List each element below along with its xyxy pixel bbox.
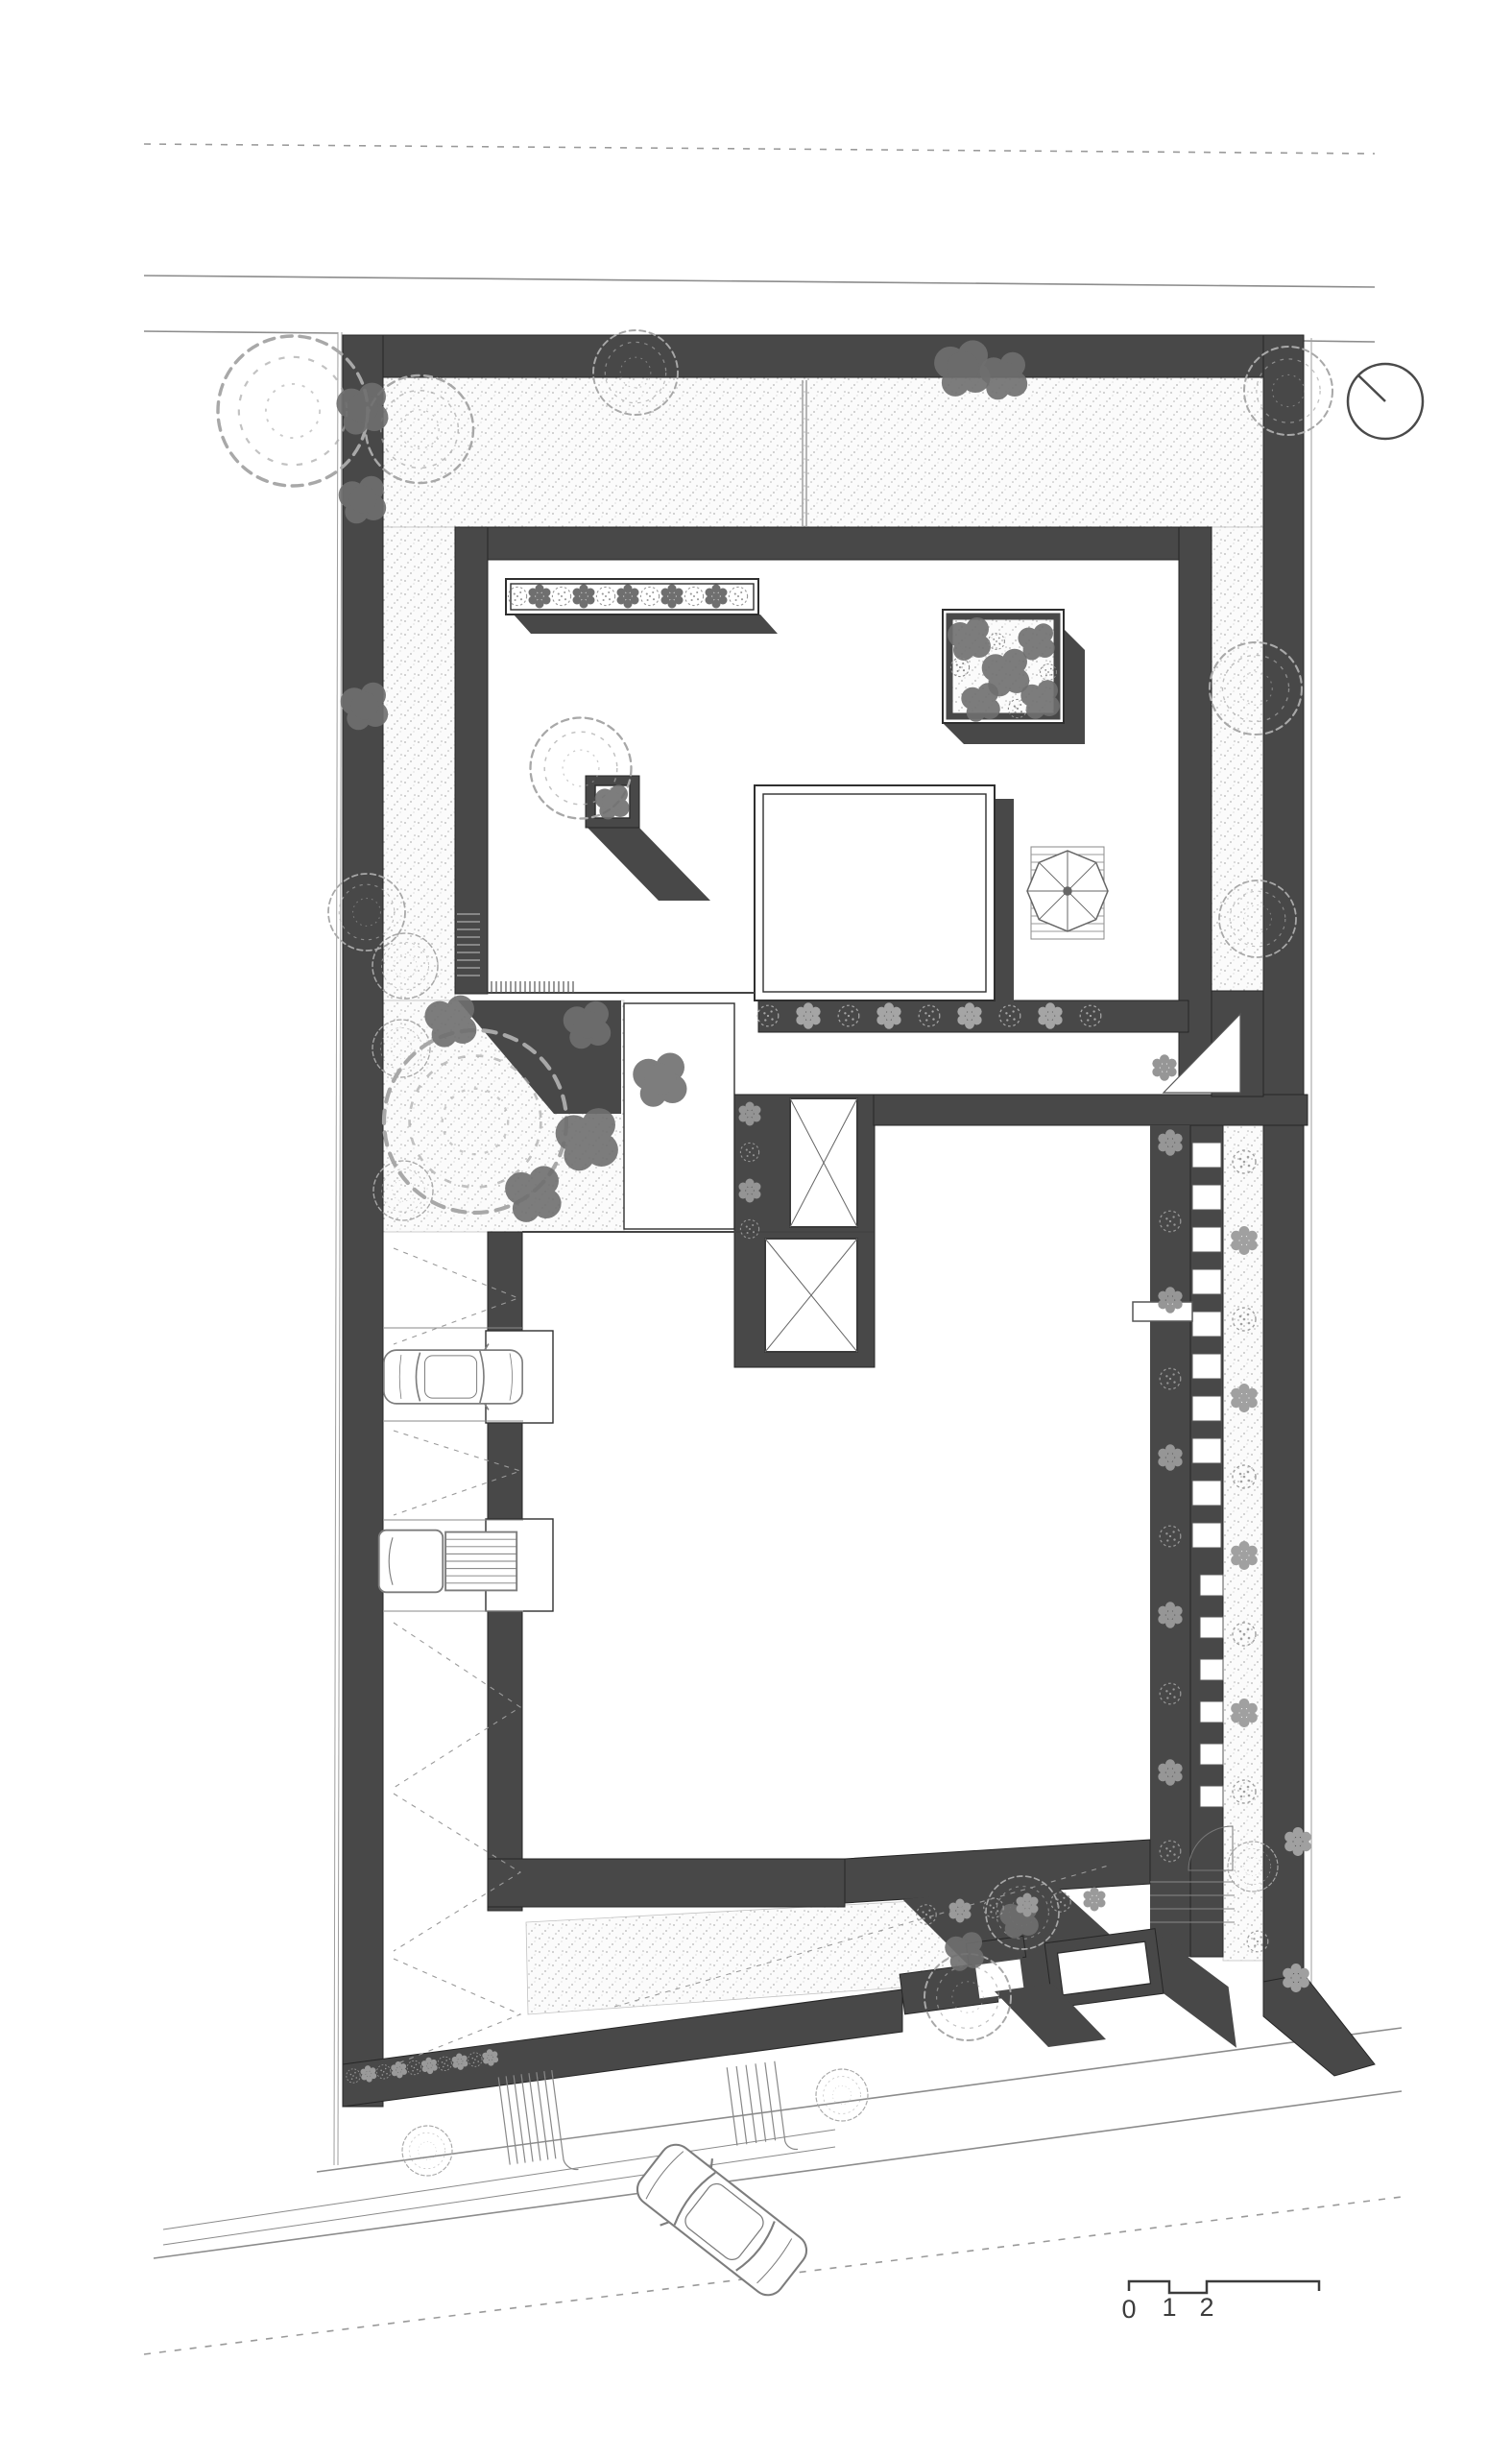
parked-pickup-truck <box>379 1530 516 1593</box>
flower <box>1152 1054 1176 1081</box>
site-plan-sheet: 0 1 2 <box>0 0 1512 2458</box>
tree-planter-shadow <box>588 828 710 901</box>
street-car <box>626 2132 818 2307</box>
skylight-x-1 <box>790 1098 857 1227</box>
upper-street-edge-right <box>1304 341 1375 342</box>
parasol-icon <box>1027 851 1108 931</box>
scale-label-0: 0 <box>1121 2295 1136 2324</box>
house-wall-west <box>455 527 488 994</box>
roof-garden-east-strip <box>1212 527 1263 991</box>
entrance-steps <box>727 2060 798 2157</box>
flower <box>1084 1888 1106 1912</box>
house-wall-north <box>455 527 1212 560</box>
boundary-wall-north <box>343 335 1304 377</box>
lower-wall-south-west <box>488 1859 845 1907</box>
upper-street-curb <box>144 276 1375 287</box>
street-tree <box>402 2126 452 2176</box>
garage-roof <box>624 1003 734 1229</box>
upper-street-edge-left <box>144 331 338 333</box>
street-tree <box>816 2069 868 2121</box>
boundary-wall-east <box>1263 335 1304 1982</box>
east-shadow-band <box>1150 1125 1190 1957</box>
scale-label-2: 2 <box>1199 2293 1213 2322</box>
pavilion-shadow <box>994 799 1014 1002</box>
north-arrow-icon <box>1348 364 1423 439</box>
skylight-x-2 <box>765 1239 857 1352</box>
terrace-furniture <box>1027 847 1108 939</box>
pavilion-roof-inner <box>763 794 986 992</box>
pavilion-roof <box>755 785 1014 1002</box>
property-line-west <box>334 332 338 2165</box>
roof-garden-north <box>383 377 1263 527</box>
roof-garden-west-strip <box>383 527 455 1000</box>
lower-wall-north <box>874 1095 1308 1125</box>
scale-bar-line <box>1129 2281 1319 2293</box>
upper-street-centerline <box>144 144 1375 154</box>
railing-balusters <box>492 981 573 993</box>
boundary-wall-west <box>343 335 383 2107</box>
terrace-railing <box>488 981 755 993</box>
driveway-steps <box>498 2068 578 2178</box>
site-plan-drawing: 0 1 2 <box>0 0 1512 2458</box>
scale-label-1: 1 <box>1162 2293 1176 2322</box>
property-line-west-2 <box>338 332 342 2165</box>
planter-shadow <box>514 614 778 634</box>
parked-car <box>384 1344 522 1410</box>
scale-bar: 0 1 2 <box>1121 2281 1319 2324</box>
boundary-wall-east-end <box>1263 1974 1375 2076</box>
